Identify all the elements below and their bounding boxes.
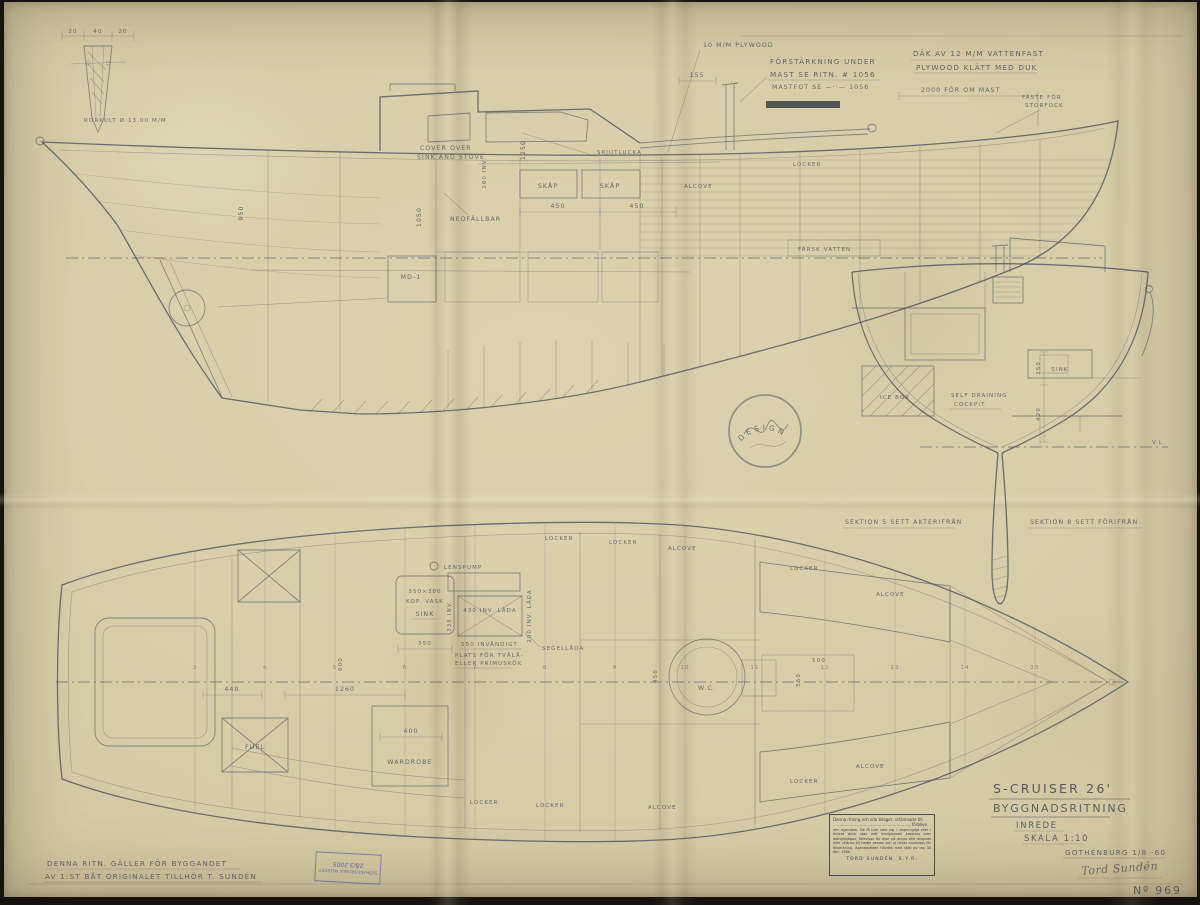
- design-stamp-word: DESIGN: [736, 423, 788, 443]
- label-locker-t1: LOCKER: [545, 536, 574, 542]
- label-skap-2: SKÅP: [600, 181, 620, 190]
- label-nedfallbar: NEDFÄLLBAR: [450, 214, 501, 223]
- station-4: 4: [263, 665, 268, 671]
- label-alcove-b1: ALCOVE: [648, 805, 677, 811]
- legal-line-2: ........................................…: [833, 822, 931, 827]
- label-skap-1: SKÅP: [538, 181, 558, 190]
- ownership-line-2: AV 1:ST BÅT ORIGINALET TILLHÖR T. SUNDÉN: [45, 872, 257, 881]
- ownership-note: DENNA RITN. GÄLLER FÖR BYGGANDET AV 1:ST…: [43, 859, 262, 882]
- legal-body: min egendom. De få icke vare sig i urspr…: [833, 828, 931, 855]
- station-15: 15: [1030, 665, 1039, 671]
- sheet-number: Nº 969: [1133, 884, 1182, 897]
- mast-section: [992, 245, 1008, 272]
- label-wc: W.C.: [698, 685, 716, 692]
- legal-footer: TORD SUNDÉN. S.Y.R.: [833, 857, 931, 862]
- mast-stub: [722, 83, 738, 150]
- title-boat-name: S-CRUISER 26': [993, 781, 1112, 796]
- stanchion: [1142, 292, 1153, 356]
- ownership-line-1: DENNA RITN. GÄLLER FÖR BYGGANDET: [47, 859, 227, 868]
- note-plywood: 10 M/M PLYWOOD: [703, 42, 774, 49]
- aft-locker: [238, 550, 300, 602]
- label-locker-b2: LOCKER: [536, 803, 565, 809]
- design-stamp: DESIGN: [729, 395, 801, 467]
- label-plats-2: ELLER PRIMUSKÖK: [455, 660, 522, 667]
- dim-1050: 1050: [416, 207, 423, 227]
- dim-550: 550: [796, 673, 802, 687]
- label-kop-vask: KOP. VASK: [406, 599, 444, 605]
- tiller-dim-40: 40: [93, 29, 102, 35]
- winch: [868, 124, 876, 132]
- label-sink-plan: SINK: [416, 611, 435, 618]
- dim-250: 250: [1036, 361, 1042, 375]
- dim-1260: 1260: [335, 686, 355, 693]
- station-14: 14: [960, 665, 969, 671]
- label-section-8: SEKTION 8 SETT FÖRIFRÅN: [1030, 517, 1138, 526]
- plan-interior: [95, 550, 1115, 802]
- label-alcove-b2: ALCOVE: [856, 764, 885, 770]
- berth-starboard: [760, 562, 950, 642]
- hull-outline: [42, 121, 1118, 414]
- sliding-hatch: [766, 101, 840, 108]
- station-3: 3: [193, 665, 198, 671]
- dim-450-plan: 450: [653, 669, 659, 683]
- title-scale: SKALA 1:10: [1024, 834, 1089, 844]
- note-reinforce-1: FÖRSTÄRKNING UNDER: [770, 57, 876, 66]
- galley-sink: [396, 576, 454, 634]
- wardrobe-plan: [372, 706, 448, 786]
- label-locker-t2: LOCKER: [609, 540, 638, 546]
- dim-950: 950: [238, 205, 245, 220]
- label-segellada: SEGELLÅDA: [542, 645, 584, 652]
- dim-420: 420: [1036, 407, 1042, 421]
- galley-shelf: [448, 573, 520, 591]
- bilge-pump: [430, 562, 438, 570]
- machinery: [160, 256, 436, 397]
- legal-stamp-box: Denna ritning och alla bilagor, utlämnad…: [829, 814, 935, 876]
- label-locker-profile: LOCKER: [793, 162, 822, 168]
- museum-stamp-name: SJÖHISTORISKA MUSEET: [318, 868, 377, 876]
- title-place-date: GOTHENBURG 1/8 -60: [1065, 848, 1166, 857]
- drawing-sheet: 20 40 20 RORKULT Ø 13.00 M/M 10 M/M PLYW…: [0, 0, 1200, 905]
- cabin-structure: [380, 83, 876, 151]
- station-9: 9: [613, 665, 618, 671]
- profile-view: COVER OVER SINK AND STOVE SKJUTLUCKA SKÅ…: [36, 83, 1120, 414]
- plan-stations: [195, 520, 1035, 845]
- wc-bowl: [669, 639, 745, 715]
- label-locker-t3: LOCKER: [790, 566, 819, 572]
- cockpit-well: [905, 308, 985, 360]
- museum-stamp: SJÖHISTORISKA MUSEET 28/3 2005: [314, 851, 381, 884]
- label-plats-1: PLATS FÖR TVÅLÅ-: [455, 652, 524, 659]
- label-self-draining: SELF DRAINING: [951, 393, 1008, 399]
- covering-board: [60, 128, 1105, 161]
- vent-box: [993, 277, 1023, 303]
- dim-500: 500: [812, 658, 826, 664]
- dim-155: 155: [689, 72, 704, 79]
- label-550-invandigt: 550 INVÄNDIGT: [461, 641, 518, 648]
- dim-335-inv: 335 INV.: [447, 600, 453, 632]
- label-locker-b1: LOCKER: [470, 800, 499, 806]
- note-mast-position: 2000 FÖR OM MAST: [921, 85, 1000, 94]
- note-cleat-2: STORFOCK: [1025, 103, 1064, 109]
- label-section-5: SEKTION 5 SETT AKTERIFRÅN: [845, 517, 962, 526]
- dim-1250: 1250: [520, 140, 527, 160]
- note-deck-2: PLYWOOD KLÄTT MED DUK: [916, 63, 1037, 72]
- station-11: 11: [750, 665, 759, 671]
- label-alcove-t1: ALCOVE: [668, 546, 697, 552]
- label-sink-dim: 350×380: [408, 589, 441, 595]
- note-reinforce-3: MASTFOT SE —··— 1056: [772, 84, 869, 91]
- station-numbers: 3 4 5 6 7 8 9 10 11 12 13 14 15: [193, 665, 1040, 671]
- station-7: 7: [473, 665, 478, 671]
- label-lada-430: 430 INV. LÅDA: [463, 607, 517, 614]
- label-locker-b3: LOCKER: [790, 779, 819, 785]
- dim-440: 440: [224, 686, 239, 693]
- label-cockpit: COCKPIT: [954, 402, 986, 408]
- plan-compartment-labels: LOCKER LOCKER ALCOVE LOCKER ALCOVE LOCKE…: [470, 536, 905, 811]
- tiller-detail: 20 40 20 RORKULT Ø 13.00 M/M: [62, 29, 167, 132]
- title-doc-type: BYGGNADSRITNING: [993, 802, 1128, 815]
- stern-fitting: [36, 137, 44, 145]
- label-waterline: V.L.: [1152, 440, 1166, 446]
- station-8: 8: [543, 665, 548, 671]
- label-ice-box: ICE BOX: [880, 395, 910, 401]
- profile-lockers: [445, 170, 880, 302]
- drawing-linework: 20 40 20 RORKULT Ø 13.00 M/M 10 M/M PLYW…: [0, 0, 1200, 905]
- designer-signature: Tord Sundén: [1081, 859, 1158, 877]
- dim-400: 400: [403, 728, 418, 735]
- label-wardrobe: WARDROBE: [387, 759, 432, 766]
- station-5: 5: [333, 665, 338, 671]
- tiller-caption: RORKULT Ø 13.00 M/M: [84, 117, 167, 124]
- label-alcove-profile: ALCOVE: [684, 184, 713, 190]
- label-farskvatten: FÄRSK VATTEN: [798, 246, 851, 253]
- tiller-dim-20a: 20: [68, 29, 77, 35]
- dim-180-inv: 180 INV.: [482, 157, 488, 189]
- label-skjutlucka: SKJUTLUCKA: [597, 150, 642, 156]
- top-notes: 10 M/M PLYWOOD FÖRSTÄRKNING UNDER MAST S…: [668, 42, 1064, 152]
- station-10: 10: [680, 665, 689, 671]
- ice-box: [862, 366, 934, 416]
- label-sink-section: SINK: [1051, 367, 1068, 373]
- tiller-dim-20b: 20: [118, 29, 127, 35]
- note-reinforce-2: MAST SE RITN. # 1056: [770, 70, 876, 79]
- station-12: 12: [820, 665, 829, 671]
- dim-600: 600: [338, 657, 344, 671]
- station-13: 13: [890, 665, 899, 671]
- dim-450-a: 450: [550, 203, 565, 210]
- keel-fin: [992, 453, 1008, 604]
- station-6: 6: [403, 665, 408, 671]
- label-lenspump: LENSPUMP: [444, 565, 482, 571]
- label-fuel: FUEL: [245, 744, 265, 751]
- label-engine: MD-1: [401, 274, 422, 281]
- title-subtitle: INREDE: [1016, 821, 1058, 831]
- note-cleat-1: FÄSTE FÖR: [1022, 94, 1062, 101]
- label-sink-and-stove: SINK AND STOVE: [417, 154, 485, 161]
- label-cover-over: COVER OVER: [420, 145, 472, 152]
- dim-350: 350: [418, 641, 432, 647]
- title-block: S-CRUISER 26' BYGGNADSRITNING INREDE SKA…: [989, 781, 1182, 897]
- note-deck-1: DÄK AV 12 M/M VATTENFAST: [913, 49, 1044, 58]
- plan-view: LENSPUMP 350×380 KOP. VASK SINK 335 INV.…: [56, 520, 1128, 845]
- label-alcove-t2: ALCOVE: [876, 592, 905, 598]
- section-view: ICE BOX SELF DRAINING COCKPIT SINK 250 4…: [843, 238, 1168, 604]
- dim-450-b: 450: [629, 203, 644, 210]
- berth-port: [760, 722, 950, 802]
